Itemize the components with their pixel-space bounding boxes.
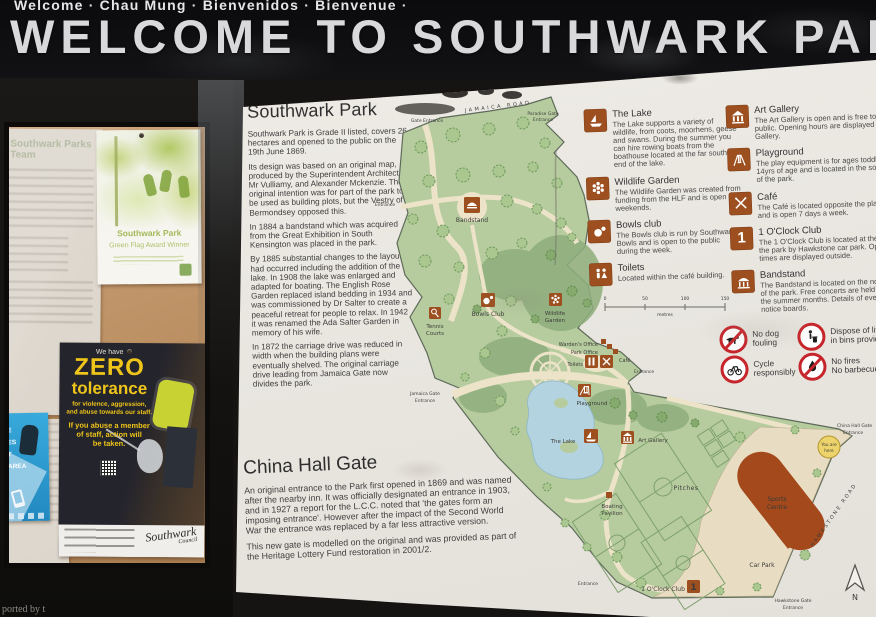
legend-item-playground: Playground The play equipment is for age… [728,144,876,186]
number-one-icon: 1 [730,227,753,250]
legend-column-2: Art Gallery The Art Gallery is open and … [726,101,876,323]
map-label-hawkstone-entrance: Entrance [783,605,803,611]
faded-text-lines [6,281,92,330]
legend-item-cafe: Café The Café is located opposite the pl… [729,187,876,220]
sign-top-banner: Welcome · Chau Mung · Bienvenidos · Bien… [0,0,876,80]
map-label-china-hall-entrance: Entrance [843,430,863,436]
legend-item-bandstand: Bandstand The Bandstand is located on th… [732,266,876,316]
pin [139,133,144,138]
legend-desc: The Art Gallery is open and is free to t… [754,112,876,142]
svg-text:1: 1 [690,583,696,593]
map-label-oclock-club: 1 O'Clock Club [641,586,685,593]
dispose-litter-icon [797,322,826,351]
parks-team-title: Southwark Parks Team [10,139,96,162]
svg-text:50: 50 [642,296,648,302]
legend-desc: The Bowls club is run by Southwark Bowls… [616,227,743,256]
rule-no-dog-fouling: No dogfouling [719,324,780,354]
svg-text:0: 0 [604,296,607,302]
zero-body3: be taken. [63,439,155,449]
map-label-paradise-gate: Paradise Gate [527,111,559,117]
no-fires-icon [798,352,827,381]
map-label-jamaica-gate: Jamaica Gate [409,391,440,397]
map-label-west-entrance: Entrance [375,202,395,208]
cafe-icon [600,355,613,368]
map-label-tennis: Tennis [425,324,443,330]
legend-desc: The play equipment is for ages toddler t… [756,155,876,185]
svg-text:150: 150 [721,296,730,302]
wildlife-garden-icon [549,293,562,306]
map-label-paradise-entrance: Entrance [533,117,553,123]
cycle-responsibly-icon [720,355,749,384]
toilets-icon [589,263,612,286]
art-gallery-icon [621,431,634,444]
zero-word: ZERO [63,356,155,381]
tolerance-word: tolerance [63,380,155,399]
swing-icon [728,148,751,171]
north-arrow-icon: N [846,565,864,602]
map-label-jamaica-entrance: Entrance [415,398,435,404]
legend-item-art-gallery: Art Gallery The Art Gallery is open and … [726,101,876,143]
svg-text:N: N [852,593,858,602]
faded-text-lines [7,237,69,278]
bowls-club-icon [481,293,495,307]
photo-of-park-sign: Welcome · Chau Mung · Bienvenidos · Bien… [0,0,876,617]
bandstand-icon [732,270,755,293]
faded-text-lines [113,256,183,265]
poster-text-fragment: T [8,451,12,458]
no-dog-fouling-icon [719,325,748,354]
green-flag-line2: Green Flag Award Winner [97,242,201,250]
rule-dispose-litter: Dispose of litterin bins provided [797,320,876,351]
map-label-courts: Courts [426,331,444,337]
museum-icon [726,105,749,128]
pin [127,349,132,354]
lake-island [554,398,568,408]
bowls-icon [588,220,611,243]
legend-item-toilets: Toilets Located within the café building… [589,259,742,286]
oclock-club-map-icon: 1 [687,580,700,593]
lake-boat-icon [584,429,598,443]
bandstand-icon [464,197,480,213]
map-label-hawkstone-gate: Hawkstone Gate [774,598,811,604]
toilets-icon [585,355,598,368]
map-label-bandstand: Bandstand [456,217,488,224]
qr-code [101,461,116,476]
map-label-china-hall-gate: China Hall Gate [837,423,872,429]
frame-glare [198,80,244,390]
svg-text:metres: metres [657,312,673,318]
rule-no-fires: No firesNo barbecues [798,350,876,381]
you-are-here-marker: You are here [818,436,840,458]
legend-desc: The Café is located opposite the playgro… [757,198,876,219]
map-label-pitches: Pitches [674,485,699,492]
svg-text:100: 100 [681,296,690,302]
playground-icon [578,384,591,397]
poster-text-fragment: AREA [8,463,27,470]
tennis-courts-icon [429,307,441,319]
map-label-cafe: Café [619,357,630,364]
zero-body2: of staff, action will [63,430,155,440]
map-label-sports: Sports [767,496,786,503]
green-flag-logo [179,264,191,276]
rule-cycle-responsibly: Cycleresponsibly [720,353,796,384]
legend-item-bowls-club: Bowls club The Bowls club is run by Sout… [588,215,741,257]
map-label-toilets: Toilets [566,362,583,368]
map-label-wildlife: Wildlife [545,311,566,317]
park-title: WELCOME TO SOUTHWARK PARK [10,9,876,64]
green-flag-poster: Southwark Park Green Flag Award Winner [96,130,201,285]
zero-poster-text: We have ZERO tolerance for violence, agg… [63,349,156,449]
worker-legs-art [163,426,198,488]
map-label-bowls-club: Bowls Club [472,311,505,318]
legend-desc: Located within the café building. [618,271,744,283]
poster-footer: SouthwarkCouncil [58,524,204,557]
cropped-frame-text: ported by t [2,604,45,615]
map-label-art-gallery: Art Gallery [638,438,668,444]
legend-item-the-lake: The Lake The Lake supports a variety of … [584,105,738,171]
map-label-boating: Boating [601,504,622,510]
map-label-nw-gate: Gate Entrance [411,118,444,124]
svg-text:here: here [824,448,834,453]
boating-pavilion-icon [606,492,612,498]
legend-desc: The 1 O'Clock Club is located at the end… [759,233,876,263]
poster-text-fragment: E [7,427,11,434]
road-art [4,451,47,522]
map-label-garden: Garden [545,318,566,324]
zero-sub1: for violence, aggression, [63,401,155,409]
faded-text-lines [7,169,94,234]
map-label-pavilion: Pavilion [601,511,623,517]
scale-bar: 0 50 100 150 metres [604,296,730,318]
green-flag-line1: Southwark Park [97,228,201,239]
southwark-council-logo: SouthwarkCouncil [144,524,197,550]
map-label-wardens-office: Warden's Office [559,342,598,348]
map-label-playground: Playground [577,401,608,407]
map-label-south-entrance: Entrance [578,581,598,587]
map-label-car-park: Car Park [749,562,775,569]
map-label-centre: Centre [767,504,787,511]
crossed-cutlery-icon [729,192,752,215]
poster-text-fragment: ES [8,439,17,446]
map-label-cafe-entrance: Entrance [634,369,654,375]
logo-strip [8,513,46,520]
zero-sub2: and abuse towards our staff. [63,408,155,416]
svg-text:You are: You are [820,442,837,447]
legend-desc: The Lake supports a variety of wildlife,… [612,117,740,170]
flower-icon [586,177,609,200]
map-label-the-lake: The Lake [550,439,576,445]
legend-column-1: The Lake The Lake supports a variety of … [584,105,742,293]
legend-item-wildl ife-garden: Wildlife Garden The Wildlife Garden was … [586,172,739,214]
legend-item-oclock-club: 1 1 O'Clock Club The 1 O'Clock Club is l… [730,222,876,264]
legend-desc: The Bandstand is located on the north si… [760,277,876,315]
social-links-lines [64,529,134,553]
blue-police-poster: E ES T AREA [4,413,50,522]
legend-desc: The Wildlife Garden was created from fun… [615,184,742,213]
sailboat-icon [584,109,607,132]
zero-tolerance-poster: We have ZERO tolerance for violence, agg… [58,342,205,557]
cork-board: Southwark Parks Team Southwark Park Gree… [4,122,210,568]
hi-vis-worker-art [151,378,195,432]
motorbike-rider-art [19,424,40,456]
